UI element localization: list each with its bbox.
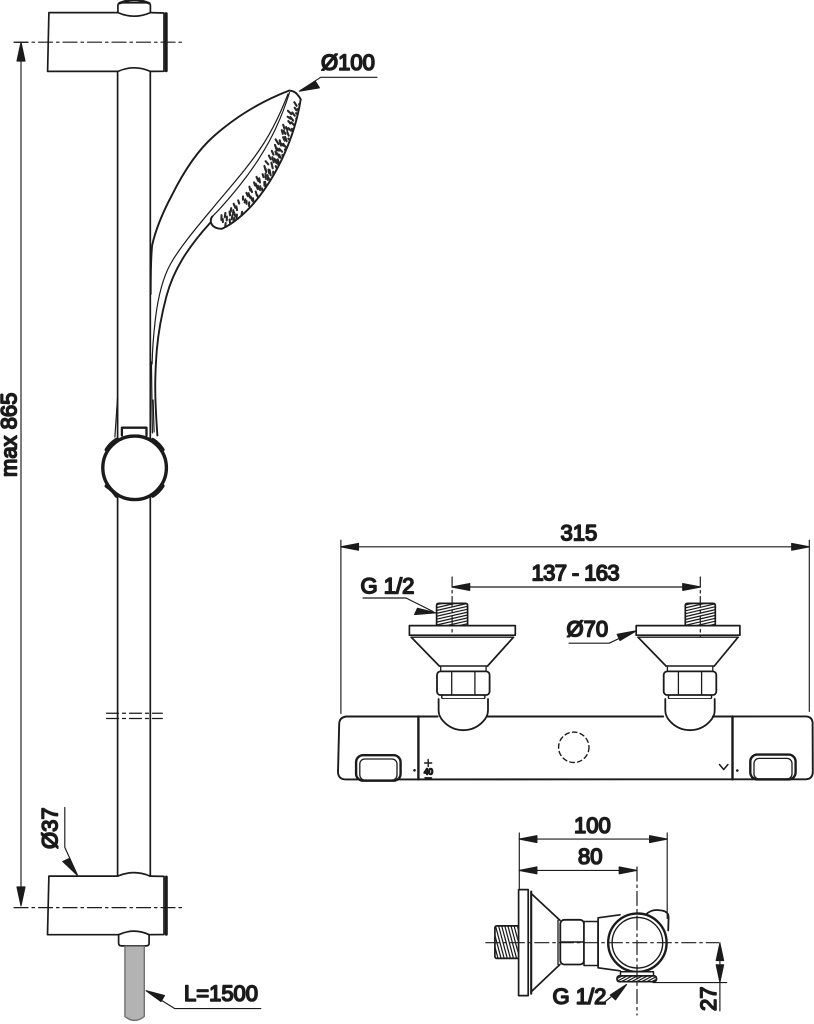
svg-text:Ø100: Ø100 <box>321 50 375 75</box>
svg-text:L=1500: L=1500 <box>184 981 258 1006</box>
svg-text:100: 100 <box>574 813 611 838</box>
svg-text:max 865: max 865 <box>0 393 22 477</box>
svg-text:27: 27 <box>696 987 721 1011</box>
svg-text:G 1/2: G 1/2 <box>361 574 415 599</box>
svg-text:80: 80 <box>578 844 602 869</box>
svg-text:Ø37: Ø37 <box>38 807 63 849</box>
svg-text:137 - 163: 137 - 163 <box>532 561 620 586</box>
svg-text:Ø70: Ø70 <box>567 617 609 642</box>
svg-text:315: 315 <box>561 521 598 546</box>
svg-text:40: 40 <box>424 768 433 777</box>
svg-text:G 1/2: G 1/2 <box>553 984 607 1009</box>
